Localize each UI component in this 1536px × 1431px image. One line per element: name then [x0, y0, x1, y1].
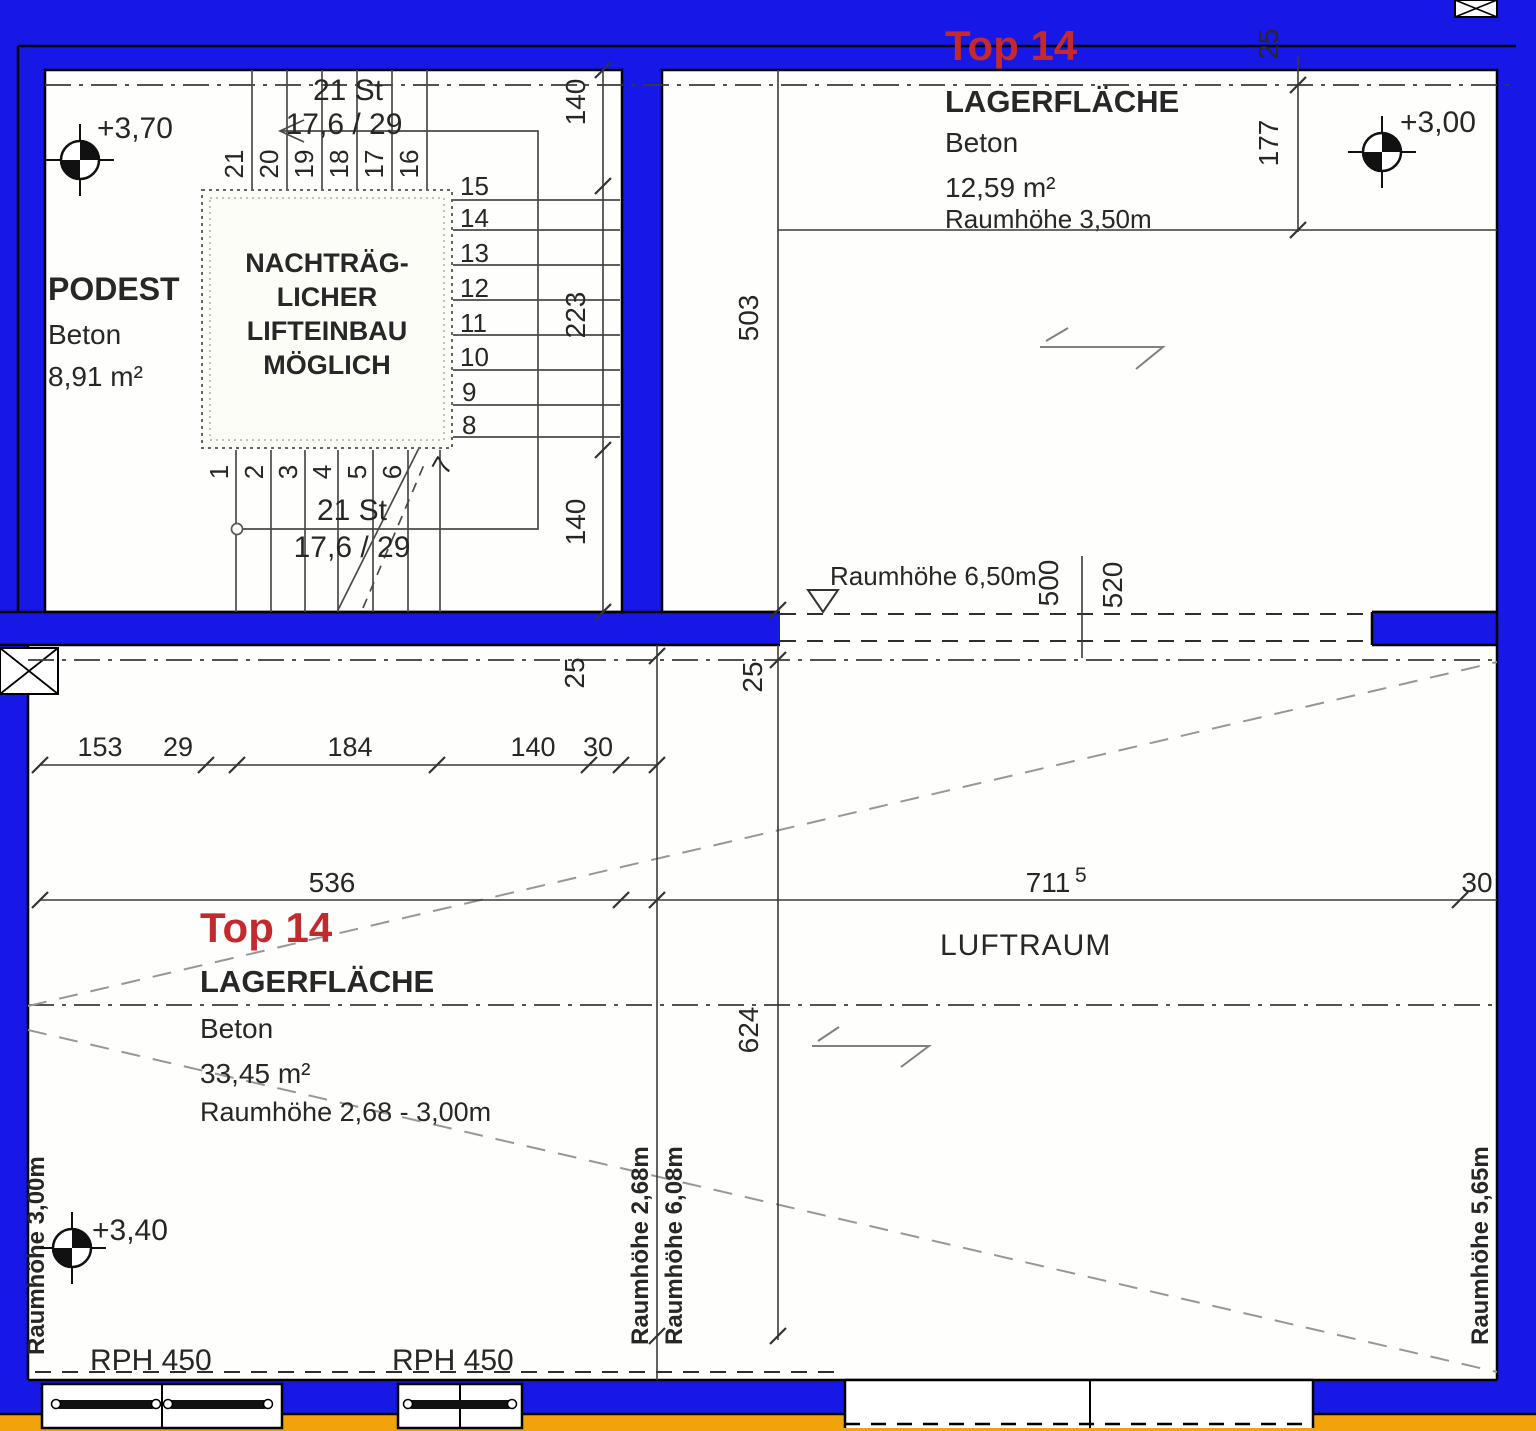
height-300-left: Raumhöhe 3,00m	[23, 1156, 50, 1355]
anchor-box-left	[0, 648, 58, 694]
svg-text:11: 11	[460, 308, 487, 338]
stair-count-bottom: 21 St	[317, 494, 388, 527]
lift-note-box: NACHTRÄG- LICHER LIFTEINBAU MÖGLICH	[202, 190, 452, 448]
svg-text:29: 29	[163, 732, 193, 762]
room-top-title: Top 14	[945, 22, 1078, 69]
room-bottom-material: Beton	[200, 1013, 273, 1044]
svg-text:14: 14	[460, 203, 489, 233]
svg-text:15: 15	[460, 171, 489, 201]
svg-text:8: 8	[462, 410, 476, 440]
svg-text:5: 5	[1075, 864, 1087, 887]
svg-text:12: 12	[460, 273, 489, 303]
svg-text:153: 153	[77, 732, 122, 762]
svg-text:30: 30	[583, 732, 613, 762]
svg-text:6: 6	[377, 465, 407, 479]
room-bottom-height: Raumhöhe 2,68 - 3,00m	[200, 1097, 491, 1127]
stair-ratio-bottom: 17,6 / 29	[294, 531, 411, 564]
level-340: +3,40	[92, 1214, 168, 1247]
room-top-material: Beton	[945, 127, 1018, 158]
walking-line-start	[232, 524, 243, 535]
stair-count-top: 21 St	[313, 74, 384, 107]
bottom-opening	[845, 1380, 1313, 1428]
svg-text:20: 20	[254, 150, 284, 179]
svg-text:Raumhöhe 6,50m: Raumhöhe 6,50m	[830, 561, 1037, 591]
height-608: Raumhöhe 6,08m	[661, 1146, 688, 1345]
lift-note-line4: MÖGLICH	[263, 350, 391, 380]
anchor-box-top-right	[1455, 0, 1497, 17]
svg-text:184: 184	[327, 732, 372, 762]
floor-plan: NACHTRÄG- LICHER LIFTEINBAU MÖGLICH 21 2…	[0, 0, 1536, 1431]
svg-text:177: 177	[1253, 120, 1284, 167]
svg-text:140: 140	[560, 499, 591, 546]
svg-text:18: 18	[324, 150, 354, 179]
rph-right: RPH 450	[392, 1344, 514, 1377]
svg-text:17: 17	[359, 150, 389, 179]
dim-503: 503	[733, 295, 764, 342]
svg-text:536: 536	[309, 867, 356, 898]
dim-624: 624	[733, 1007, 764, 1054]
rph-left: RPH 450	[90, 1344, 212, 1377]
svg-text:223: 223	[560, 292, 591, 339]
level-370: +3,70	[97, 112, 173, 145]
svg-text:3: 3	[273, 465, 303, 479]
svg-text:140: 140	[560, 79, 591, 126]
svg-text:2: 2	[239, 465, 269, 479]
svg-text:9: 9	[462, 377, 476, 407]
room-top-use: LAGERFLÄCHE	[945, 84, 1179, 119]
svg-text:711: 711	[1026, 867, 1071, 898]
svg-text:140: 140	[510, 732, 555, 762]
podest-title: PODEST	[48, 271, 180, 307]
svg-text:25: 25	[1253, 28, 1284, 59]
svg-text:13: 13	[460, 238, 489, 268]
lift-note-line1: NACHTRÄG-	[245, 248, 408, 278]
level-300: +3,00	[1400, 106, 1476, 139]
svg-text:500: 500	[1033, 560, 1064, 607]
luftraum-label: LUFTRAUM	[940, 929, 1111, 962]
svg-text:10: 10	[460, 342, 489, 372]
lift-note-line3: LIFTEINBAU	[247, 316, 407, 346]
svg-text:30: 30	[1461, 867, 1492, 898]
svg-text:4: 4	[307, 465, 337, 479]
svg-text:520: 520	[1097, 562, 1128, 609]
svg-text:19: 19	[289, 150, 319, 179]
podest-material: Beton	[48, 319, 121, 350]
svg-text:1: 1	[204, 465, 234, 479]
window-left	[42, 1384, 282, 1428]
podest-area: 8,91 m²	[48, 361, 143, 392]
svg-text:5: 5	[342, 465, 372, 479]
room-bottom-title: Top 14	[200, 904, 333, 951]
height-268: Raumhöhe 2,68m	[627, 1146, 654, 1345]
dim-25a: 25	[559, 657, 590, 688]
dim-25b: 25	[737, 661, 768, 692]
lift-note-line2: LICHER	[277, 282, 378, 312]
stair-ratio-top: 17,6 / 29	[286, 108, 403, 141]
window-right	[398, 1384, 522, 1428]
room-bottom-use: LAGERFLÄCHE	[200, 964, 434, 999]
svg-text:16: 16	[394, 150, 424, 179]
room-bottom-area: 33,45 m²	[200, 1058, 311, 1089]
height-565: Raumhöhe 5,65m	[1467, 1146, 1494, 1345]
room-top-area: 12,59 m²	[945, 172, 1056, 203]
svg-text:21: 21	[219, 150, 249, 179]
